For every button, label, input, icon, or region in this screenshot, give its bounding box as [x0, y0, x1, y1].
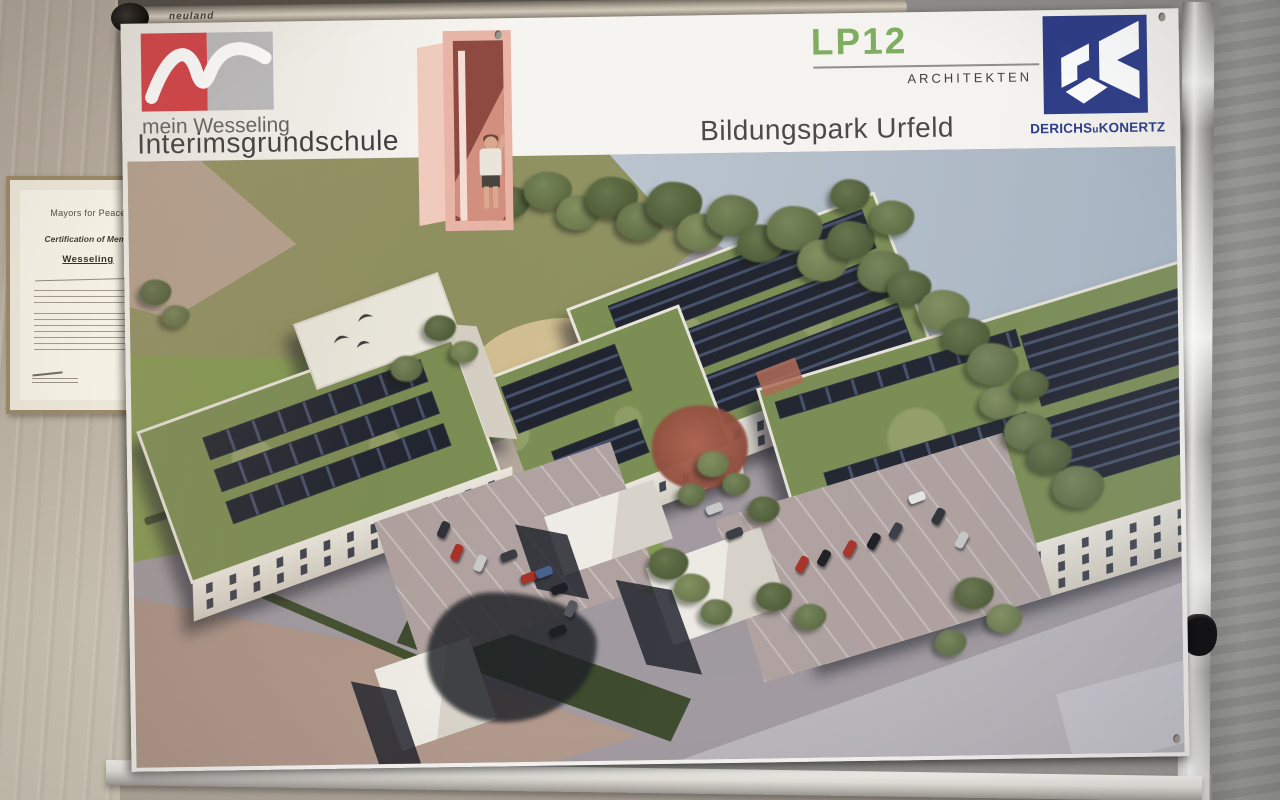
aerial-rendering: [128, 146, 1185, 767]
car: [449, 543, 464, 562]
derichs-konertz-logo-icon: [1042, 15, 1147, 115]
car: [842, 539, 858, 558]
project-title: Interimsgrundschule: [137, 125, 399, 161]
car: [705, 501, 724, 515]
photo-scene: Mayors for Peace Certification of Memb W…: [0, 0, 1280, 800]
architect-logo-rule: [813, 63, 1039, 68]
architect-logo: LP12: [811, 20, 908, 63]
child-shirt: [479, 148, 501, 176]
car: [550, 582, 569, 596]
doorway-illustration: [417, 30, 514, 233]
car: [954, 530, 970, 549]
poster-pin: [1158, 12, 1165, 21]
poster-pin: [1173, 734, 1180, 743]
contractor-name-part: DERICHS: [1030, 120, 1092, 136]
child-leg: [484, 186, 489, 208]
car: [472, 554, 487, 573]
mein-wesseling-logo: [141, 32, 274, 112]
door-leaf: [458, 51, 468, 221]
site-poster: mein Wesseling Interimsgrundschule Bildu…: [121, 8, 1190, 772]
doorway-front-panel: [443, 30, 514, 231]
car: [549, 624, 568, 638]
car: [499, 548, 518, 562]
child-leg: [493, 186, 498, 208]
wesseling-swoosh-icon: [141, 32, 274, 112]
car: [930, 507, 946, 526]
contractor-name-part: KONERTZ: [1099, 119, 1166, 135]
car: [908, 490, 927, 504]
car: [436, 520, 451, 539]
poster-hook: [495, 30, 502, 39]
car: [563, 599, 578, 618]
child-figure: [476, 136, 505, 221]
car-layer: [128, 146, 1185, 767]
contractor-wordmark: DERICHSuKONERTZ: [1030, 119, 1164, 136]
architect-label: ARCHITEKTEN: [907, 69, 1032, 86]
board-brand-label: neuland: [169, 11, 214, 23]
car: [816, 548, 832, 567]
car: [866, 532, 882, 551]
car: [725, 526, 744, 540]
site-title: Bildungspark Urfeld: [700, 112, 954, 148]
certificate-signature: [31, 361, 62, 376]
car: [794, 555, 810, 574]
concrete-pillar-right: [1210, 0, 1280, 800]
car: [535, 565, 554, 579]
certificate-signature-caption: [32, 378, 78, 386]
car: [888, 521, 904, 540]
doorway-opening: [453, 40, 506, 221]
